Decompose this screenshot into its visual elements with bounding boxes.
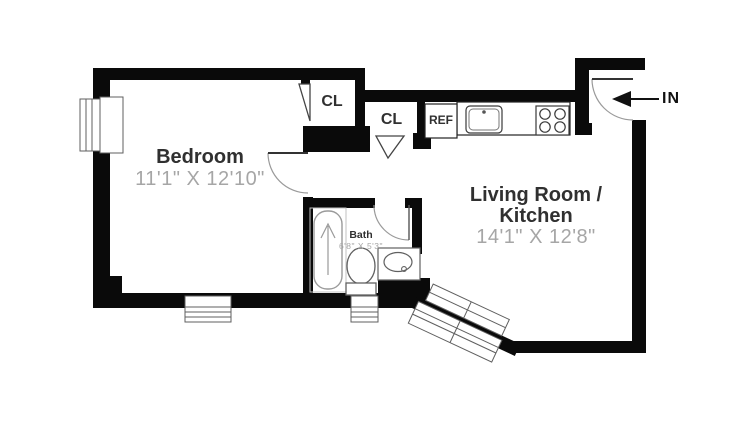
closet1-label: CL (308, 93, 356, 110)
wall-top-kitchen (358, 90, 575, 102)
wall-bottom-right (512, 341, 646, 353)
bedroom-name-label: Bedroom (100, 147, 300, 169)
refrigerator-label: REF (425, 114, 457, 127)
bedroom-dimensions-label: 11'1" X 12'10" (100, 169, 300, 191)
bath-name-label: Bath (331, 230, 391, 241)
wall-entry-top (575, 58, 645, 70)
closet2-label: CL (365, 111, 418, 128)
wall-bath-right (412, 198, 422, 254)
living-room-name-line2: Kitchen (440, 206, 632, 228)
bath-dimensions-label: 6'8" X 5'3" (326, 242, 396, 251)
window-bedroom-bottom-icon (185, 296, 231, 322)
window-bath-bottom-icon (351, 296, 378, 322)
wall-top-bedroom (93, 68, 365, 80)
living-room-name-line1: Living Room / (440, 185, 632, 207)
wall-right (632, 120, 646, 353)
closet2-door-icon (376, 136, 404, 158)
floor-plan: Bedroom 11'1" X 12'10" Living Room / Kit… (0, 0, 751, 428)
wall-bottom-bedroom (93, 293, 383, 308)
living-room-dimensions-label: 14'1" X 12'8" (440, 227, 632, 249)
wall-bath-top (303, 198, 375, 208)
entrance-label: IN (662, 90, 680, 107)
wall-hall-band (303, 126, 370, 152)
wall-bath-left (303, 197, 313, 308)
